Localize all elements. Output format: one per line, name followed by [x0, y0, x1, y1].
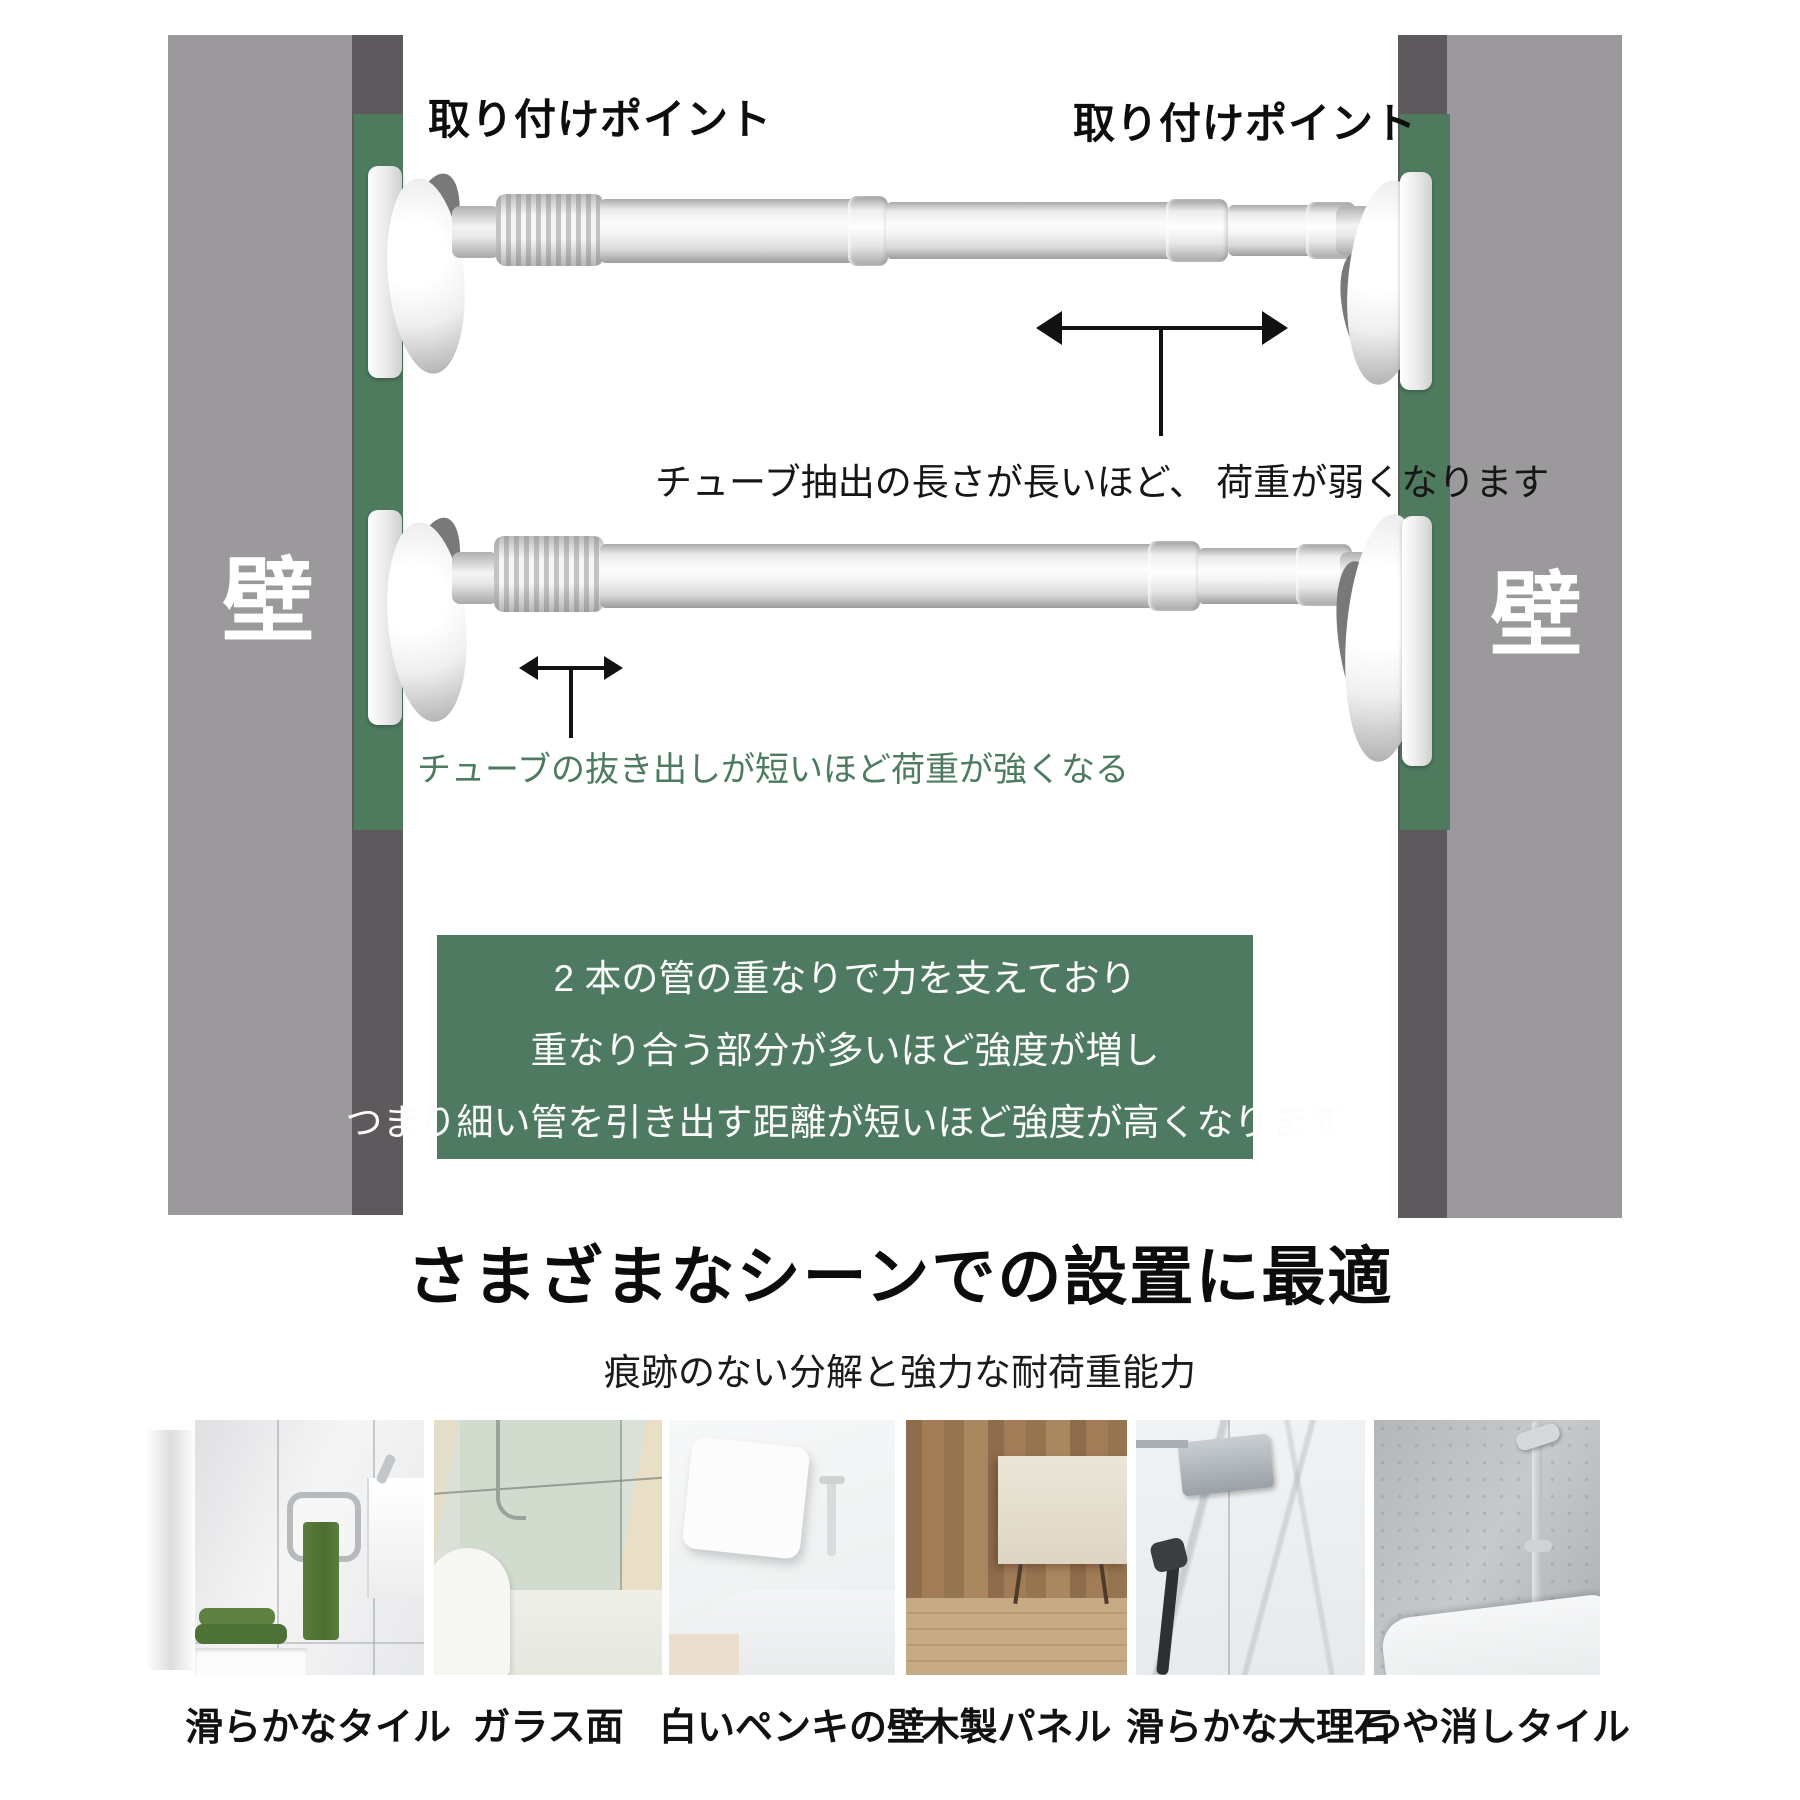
hanging-towel — [303, 1522, 339, 1640]
info-line-3: つまり細い管を引き出す距離が短いほど強度が高くなります — [346, 1092, 1345, 1146]
faucet-spout-icon — [819, 1476, 845, 1484]
rod1-adjust-knob — [496, 194, 604, 266]
cream-cabinet — [998, 1456, 1127, 1564]
rod1-tube-b — [886, 202, 1174, 259]
caption-wood-panel: 木製パネル — [896, 1696, 1137, 1751]
shower-rail-icon — [1532, 1420, 1542, 1610]
arrow-small-center-tick — [569, 668, 573, 738]
photo-smooth-marble — [1136, 1420, 1365, 1675]
mount-point-label-right: 取り付けポイント — [1073, 90, 1417, 151]
note-long-extension: チューブ抽出の長さが長いほど、 荷重が弱くなります — [655, 452, 1549, 506]
caption-glass-surface: ガラス面 — [424, 1696, 672, 1751]
rod1-left-neck — [452, 206, 500, 258]
wood-floor — [906, 1598, 1127, 1675]
arrow-small-right-head-icon — [604, 656, 623, 680]
info-line-1: 2 本の管の重なりで力を支えており — [554, 948, 1137, 1002]
stool — [195, 1648, 307, 1675]
hand-shower-head-icon — [1149, 1536, 1189, 1573]
rod1-joint-collar-2 — [1166, 199, 1228, 262]
product-diagram-canvas: 壁 壁 取り付けポイント 取り付けポイント チューブ抽出の長さが長いほど、 荷重… — [0, 0, 1800, 1800]
caption-matte-tile: つや消しタイル — [1364, 1696, 1610, 1751]
caption-smooth-marble: 滑らかな大理石 — [1126, 1696, 1375, 1751]
mount-point-label-left: 取り付けポイント — [428, 86, 772, 147]
photo-glass-surface — [434, 1420, 662, 1675]
section-subheading: 痕跡のない分解と強力な耐荷重能力 — [0, 1342, 1800, 1396]
towel-bottom — [195, 1624, 287, 1644]
arrow-center-tick — [1159, 328, 1163, 436]
rod1-right-mount-plate — [1400, 172, 1432, 390]
square-basin — [681, 1436, 810, 1560]
rod2-joint-collar-1 — [1148, 541, 1200, 611]
rod2-tube-a — [600, 544, 1156, 608]
left-wall-label: 壁 — [222, 556, 314, 648]
rod2-left-neck — [452, 552, 498, 604]
corner-sink — [367, 1478, 424, 1598]
shower-hose-icon — [496, 1420, 526, 1520]
rail-handle-icon — [1524, 1540, 1552, 1552]
arrow-right-head-icon — [1262, 311, 1288, 345]
right-wall-label: 壁 — [1490, 570, 1582, 662]
strength-info-box: 2 本の管の重なりで力を支えており 重なり合う部分が多いほど強度が増し つまり細… — [437, 935, 1253, 1159]
folded-towels — [195, 1608, 291, 1652]
caption-white-paint: 白いペンキの壁 — [659, 1696, 905, 1751]
rod1-tube-a — [600, 199, 860, 263]
beige-floor-hint — [669, 1634, 739, 1675]
shower-arm-icon — [1136, 1440, 1188, 1448]
rod2-adjust-knob — [494, 536, 604, 612]
hand-shower-icon — [1156, 1560, 1180, 1675]
photo-wood-panel — [906, 1420, 1127, 1675]
rod1-joint-collar-1 — [848, 196, 888, 266]
section-heading: さまざまなシーンでの設置に最適 — [0, 1226, 1800, 1318]
note-short-extension: チューブの抜き出しが短いほど荷重が強くなる — [417, 742, 1129, 791]
rod2-right-mount-plate — [1402, 516, 1432, 766]
rod2-tube-b — [1198, 548, 1304, 604]
photo-left-fade — [146, 1430, 196, 1670]
info-line-2: 重なり合う部分が多いほど強度が増し — [531, 1020, 1160, 1074]
caption-smooth-tile: 滑らかなタイル — [185, 1696, 434, 1751]
photo-white-paint-wall — [669, 1420, 895, 1675]
faucet-icon — [827, 1478, 836, 1556]
photo-smooth-tile — [195, 1420, 424, 1675]
toilet-shape — [434, 1548, 510, 1675]
photo-matte-tile — [1374, 1420, 1600, 1675]
rain-shower-head-icon — [1177, 1433, 1274, 1496]
tub-corner — [1379, 1592, 1600, 1675]
